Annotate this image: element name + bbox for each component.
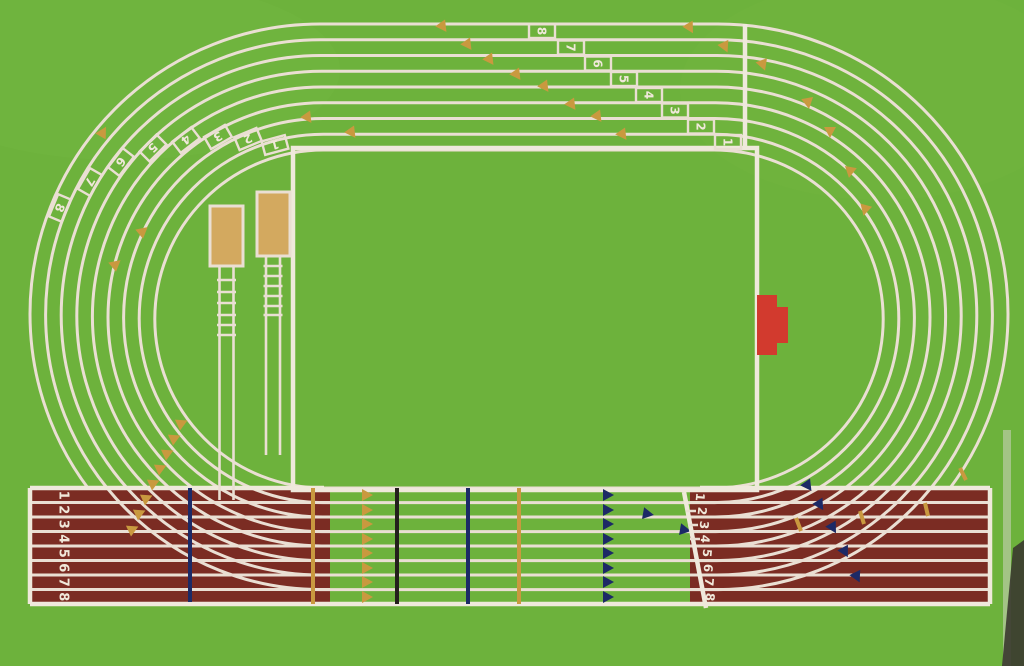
track-painting-canvas: 8 7 6 5 4 3 2 1 1 2 3 4 5 6 7 8 1 2 3 4 … [0,0,1024,666]
sand-pit-icon [257,192,290,256]
lane-number: 2 [694,122,708,130]
lane-number: 4 [698,534,713,544]
lane-number: 1 [693,492,708,502]
lane-number: 1 [721,138,735,146]
lane-number: 3 [697,520,712,530]
lane-number: 6 [56,563,71,572]
lane-number: 5 [700,548,715,558]
lane-number: 7 [56,578,71,587]
extension-lane-lines [690,503,990,590]
lane-number: 3 [668,106,682,114]
chute-lane-lines [30,503,330,590]
lane-number: 4 [642,91,656,99]
lane-number: 6 [701,563,716,573]
track-painting: 8 7 6 5 4 3 2 1 1 2 3 4 5 6 7 8 1 2 3 4 … [0,0,1024,666]
lane-number: 2 [56,505,71,514]
lane-number: 7 [702,577,717,587]
lane-number: 8 [56,592,71,601]
lane-number: 4 [56,534,71,543]
lane-number: 8 [535,27,549,35]
sand-pit-icon [210,206,243,266]
lane-number: 2 [695,506,710,516]
lane-number: 3 [56,520,71,529]
lane-number: 8 [703,592,718,602]
lane-number: 5 [617,75,631,83]
lane-number: 5 [56,549,71,558]
lane-number: 6 [591,59,605,67]
lane-number: 1 [56,491,71,500]
lane-number: 7 [564,43,578,51]
